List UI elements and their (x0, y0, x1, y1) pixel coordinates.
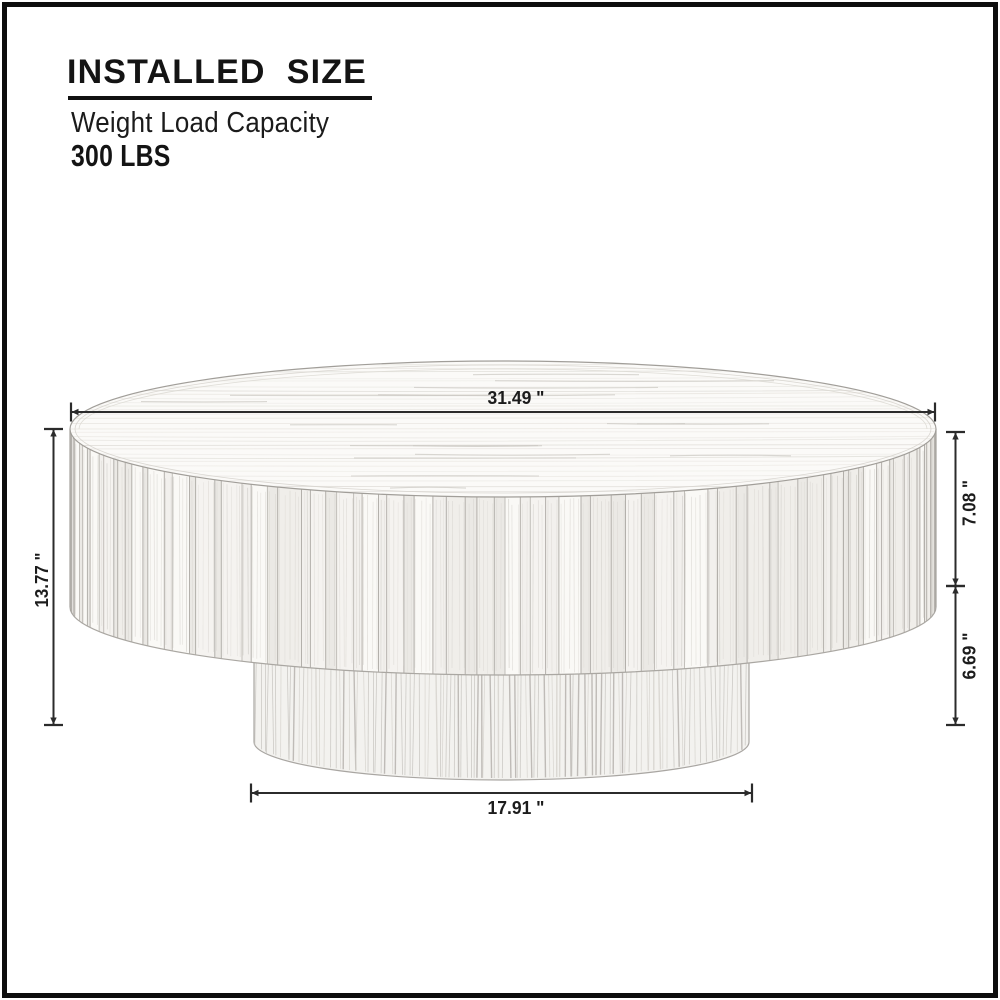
svg-text:6.69 ": 6.69 " (959, 633, 980, 680)
svg-text:17.91 ": 17.91 " (488, 797, 545, 818)
svg-text:31.49 ": 31.49 " (488, 387, 545, 408)
svg-text:13.77 ": 13.77 " (31, 553, 52, 608)
svg-text:7.08 ": 7.08 " (959, 480, 980, 526)
